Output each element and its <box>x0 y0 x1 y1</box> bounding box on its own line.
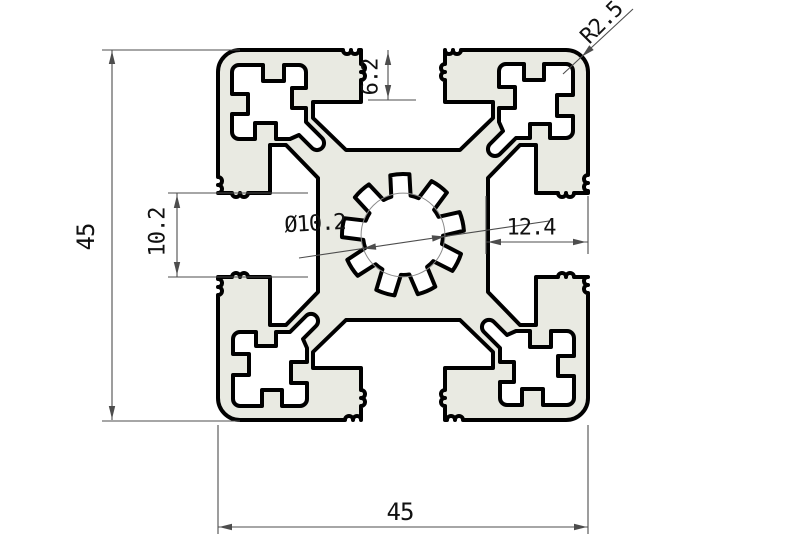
dim-bottom-45-label: 45 <box>387 498 414 526</box>
dimension-arrow <box>385 85 391 98</box>
dimension-arrow <box>574 524 587 530</box>
cad-canvas: 45456.210.212.4Ø10.2R2.5 <box>0 0 804 557</box>
dim-left-45-label: 45 <box>72 224 100 251</box>
profile-drawing: 45456.210.212.4Ø10.2R2.5 <box>0 0 804 557</box>
dimension-arrow <box>219 524 232 530</box>
bore-reference-circle <box>361 193 445 277</box>
dimension-arrow <box>109 51 115 64</box>
dimension-arrow <box>385 52 391 65</box>
dim-slot-depth-label: 6.2 <box>359 59 384 96</box>
dim-slot-opening-label: 10.2 <box>146 208 171 257</box>
dimension-arrow <box>174 262 180 275</box>
dimension-arrow <box>174 195 180 208</box>
dim-corner-radius-label: R2.5 <box>576 0 628 49</box>
dimension-arrow <box>573 239 586 245</box>
dim-center-bore-label: Ø10.2 <box>284 210 346 238</box>
dim-side-wall-label: 12.4 <box>507 216 557 241</box>
dimension-arrow <box>109 406 115 419</box>
